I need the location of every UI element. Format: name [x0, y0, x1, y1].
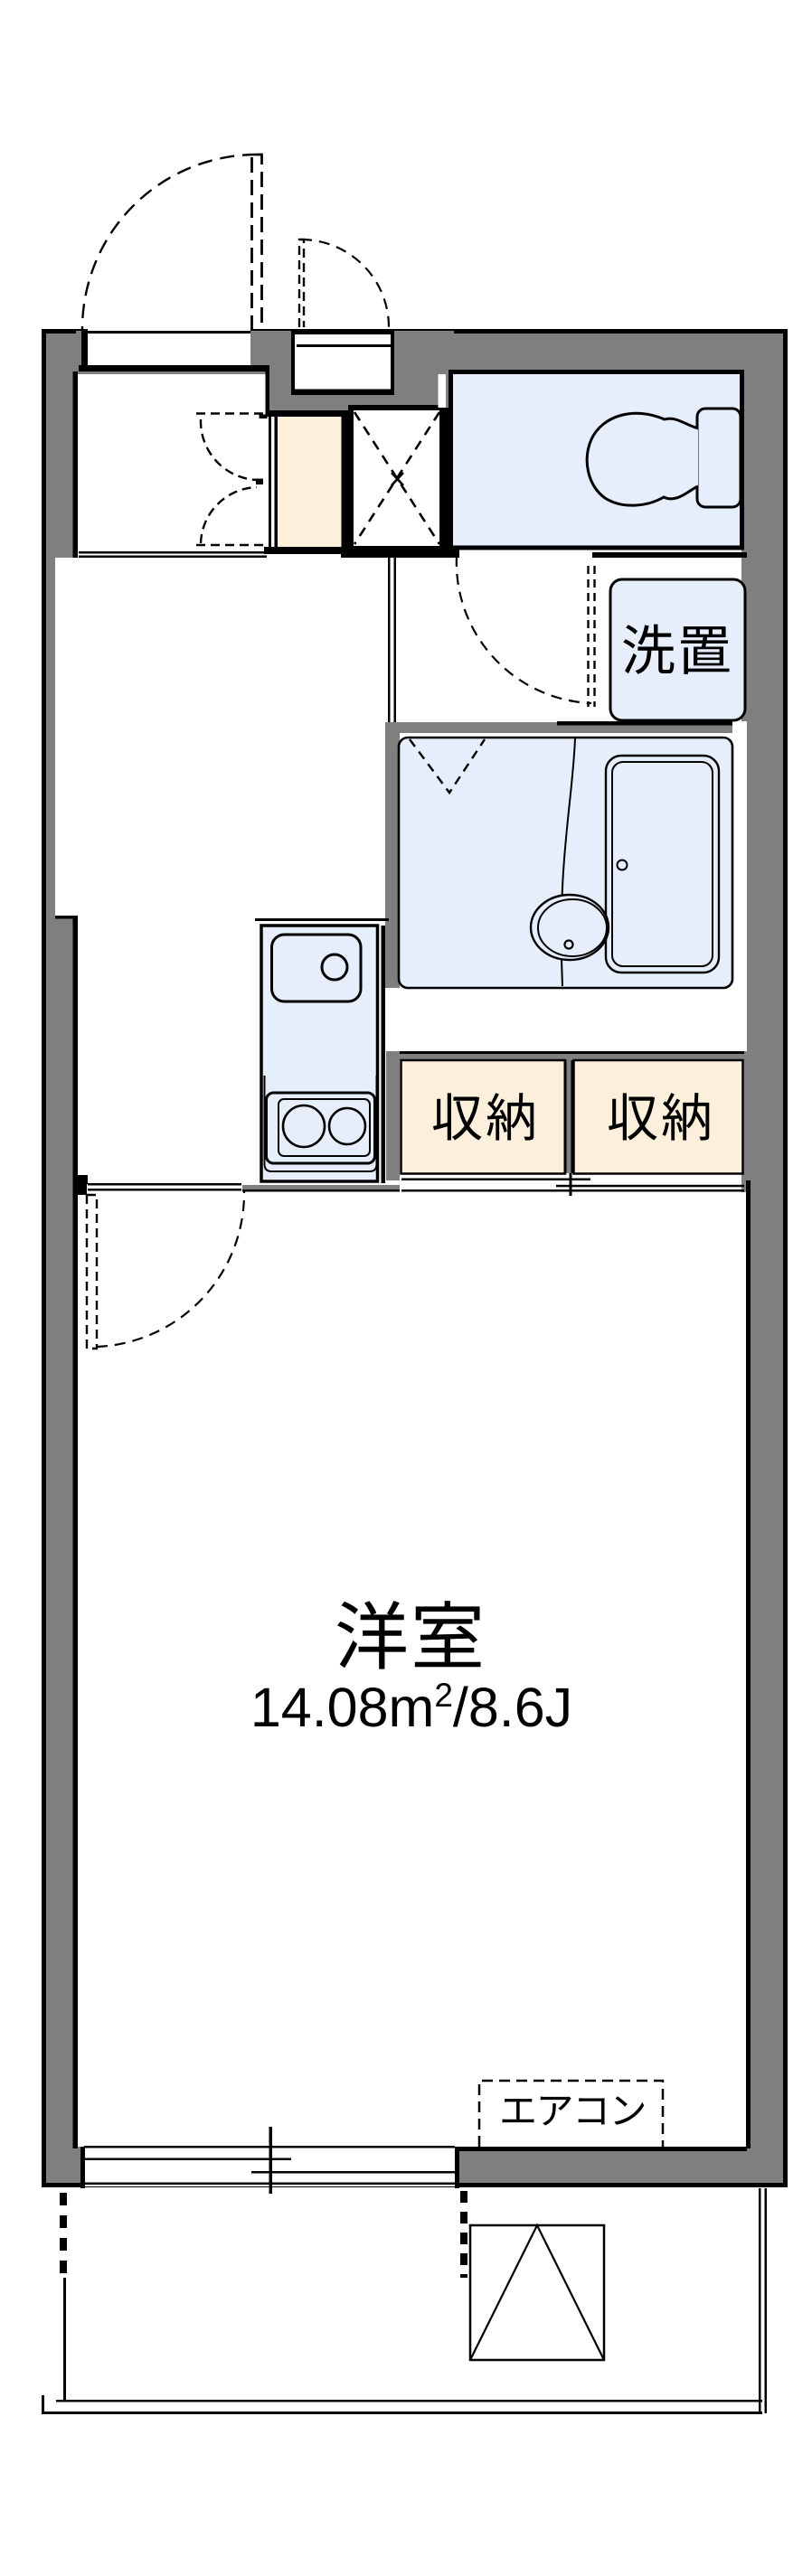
svg-text:14.08m2/8.6J: 14.08m2/8.6J: [250, 1677, 572, 1738]
